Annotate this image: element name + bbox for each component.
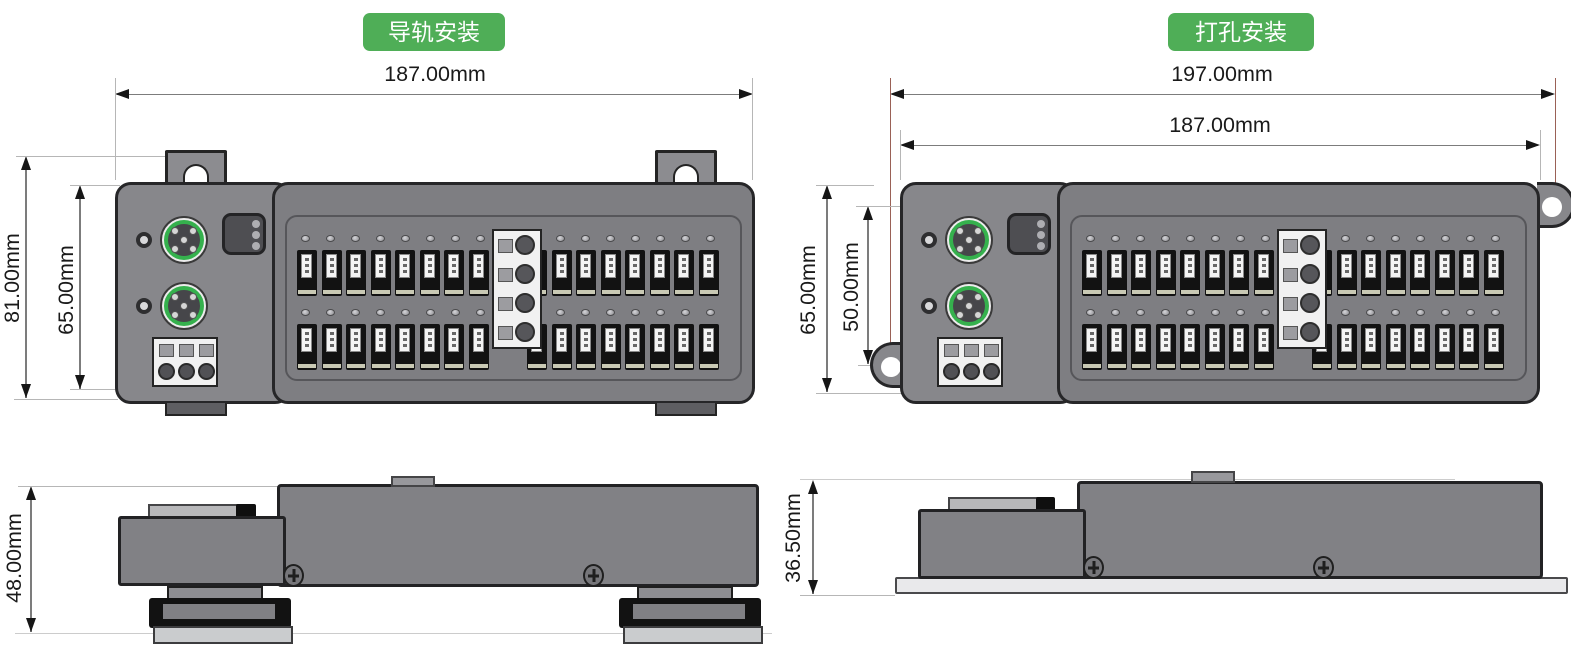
terminal-connector xyxy=(444,324,464,370)
terminal-connector xyxy=(576,250,596,296)
channel-led-icon xyxy=(631,235,640,242)
terminal-connector xyxy=(444,250,464,296)
terminal-connector xyxy=(601,324,621,370)
screw-icon xyxy=(283,564,304,587)
channel-led-icon xyxy=(1441,235,1450,242)
rail-mount-tab xyxy=(165,150,227,185)
extension-line xyxy=(70,389,120,390)
power-terminal-block xyxy=(937,337,1003,387)
extension-line xyxy=(14,399,118,400)
m12-connector-icon xyxy=(945,216,993,264)
channel-led-icon xyxy=(556,235,565,242)
channel-led-icon xyxy=(681,309,690,316)
dim-line xyxy=(892,94,1553,95)
rail-mount-tab xyxy=(655,150,717,185)
channel-led-icon xyxy=(581,235,590,242)
side-main-body xyxy=(1077,481,1543,579)
mounting-ear xyxy=(1537,182,1571,228)
channel-led-icon xyxy=(376,235,385,242)
channel-led-icon xyxy=(1111,235,1120,242)
din-rail-clip xyxy=(617,586,769,644)
channel-led-icon xyxy=(706,309,715,316)
terminal-connector xyxy=(469,324,489,370)
dim-line xyxy=(117,94,751,95)
screw-mount-side-view xyxy=(895,468,1571,608)
channel-led-icon xyxy=(1261,235,1270,242)
screw-icon xyxy=(1313,556,1334,579)
terminal-connector xyxy=(297,250,317,296)
channel-led-icon xyxy=(1186,235,1195,242)
channel-led-icon xyxy=(476,309,485,316)
channel-led-icon xyxy=(351,235,360,242)
terminal-connector xyxy=(469,250,489,296)
channel-led-icon xyxy=(1211,309,1220,316)
indicator-led-icon xyxy=(136,298,152,314)
terminal-connector xyxy=(1484,250,1504,296)
dim-arrow xyxy=(822,378,832,392)
status-led-panel xyxy=(1007,213,1051,255)
terminal-connector xyxy=(1386,324,1406,370)
channel-led-icon xyxy=(1136,309,1145,316)
channel-led-icon xyxy=(1086,235,1095,242)
channel-led-icon xyxy=(1466,235,1475,242)
terminal-group xyxy=(1312,233,1504,375)
terminal-connector xyxy=(674,250,694,296)
dim-line xyxy=(30,489,31,632)
dim-line xyxy=(79,188,80,389)
channel-led-icon xyxy=(1391,235,1400,242)
terminal-connector xyxy=(1229,250,1249,296)
terminal-connector xyxy=(1082,250,1102,296)
side-top-detail xyxy=(391,476,435,487)
screw-icon xyxy=(1083,556,1104,579)
rail-clip-tab xyxy=(655,403,717,416)
channel-led-icon xyxy=(606,309,615,316)
screw-mount-front-view xyxy=(900,150,1540,418)
dim-arrow xyxy=(75,375,85,389)
screw-icon xyxy=(583,564,604,587)
mounting-baseplate xyxy=(895,577,1568,594)
dim-label-left-width: 187.00mm xyxy=(350,62,520,87)
terminal-connector xyxy=(1459,324,1479,370)
channel-led-icon xyxy=(1416,235,1425,242)
extension-line xyxy=(1540,130,1541,180)
rail-mount-front-view xyxy=(115,150,755,418)
terminal-connector xyxy=(650,324,670,370)
mounting-hole xyxy=(1542,197,1562,217)
terminal-connector xyxy=(1435,250,1455,296)
channel-led-icon xyxy=(1341,309,1350,316)
channel-led-icon xyxy=(1161,309,1170,316)
dim-arrow xyxy=(26,618,36,632)
channel-led-icon xyxy=(1441,309,1450,316)
terminal-connector xyxy=(1205,250,1225,296)
dim-line xyxy=(826,188,827,392)
mounting-hole xyxy=(881,357,901,377)
channel-led-icon xyxy=(1416,309,1425,316)
rail-mount-badge: 导轨安装 xyxy=(363,13,505,51)
terminal-connector xyxy=(322,250,342,296)
indicator-led-icon xyxy=(136,232,152,248)
terminal-connector xyxy=(1337,324,1357,370)
channel-led-icon xyxy=(1186,309,1195,316)
mounting-dimensions-diagram: 导轨安装 187.00mm 81.00mm 65.00mm 48.00mm xyxy=(0,0,1571,664)
channel-led-icon xyxy=(1391,309,1400,316)
status-led-icon xyxy=(1037,220,1045,228)
dim-arrow xyxy=(822,185,832,199)
terminal-connector xyxy=(1082,324,1102,370)
dim-line xyxy=(867,209,868,364)
dim-arrow xyxy=(900,140,914,150)
terminal-connector xyxy=(346,324,366,370)
terminal-connector xyxy=(1254,324,1274,370)
channel-led-icon xyxy=(301,309,310,316)
terminal-connector xyxy=(552,324,572,370)
channel-led-icon xyxy=(451,235,460,242)
extension-line xyxy=(816,185,874,186)
channel-led-icon xyxy=(681,235,690,242)
din-rail-clip xyxy=(147,586,299,644)
terminal-connector xyxy=(1156,250,1176,296)
channel-led-icon xyxy=(606,235,615,242)
terminal-connector xyxy=(1435,324,1455,370)
terminal-group xyxy=(527,233,719,375)
channel-led-icon xyxy=(376,309,385,316)
channel-led-icon xyxy=(1086,309,1095,316)
terminal-connector xyxy=(371,250,391,296)
m12-connector-icon xyxy=(160,216,208,264)
channel-led-icon xyxy=(451,309,460,316)
dim-arrow xyxy=(115,89,129,99)
channel-led-icon xyxy=(1341,235,1350,242)
channel-led-icon xyxy=(1136,235,1145,242)
channel-led-icon xyxy=(1161,235,1170,242)
dim-label-right-height-outer: 65.00mm xyxy=(795,225,821,355)
device-head-section xyxy=(115,182,291,404)
dim-arrow xyxy=(1541,89,1555,99)
terminal-connector xyxy=(552,250,572,296)
side-head-section xyxy=(918,509,1086,579)
channel-led-icon xyxy=(476,235,485,242)
terminal-connector xyxy=(1180,324,1200,370)
rail-clip-tab xyxy=(165,403,227,416)
channel-led-icon xyxy=(401,235,410,242)
channel-led-icon xyxy=(426,235,435,242)
terminal-connector xyxy=(420,324,440,370)
channel-led-icon xyxy=(351,309,360,316)
terminal-connector xyxy=(322,324,342,370)
side-head-section xyxy=(118,516,286,586)
screw-mount-badge: 打孔安装 xyxy=(1168,13,1314,51)
status-led-icon xyxy=(252,242,260,250)
channel-led-icon xyxy=(326,309,335,316)
terminal-group xyxy=(1082,233,1274,375)
terminal-connector xyxy=(674,324,694,370)
dim-label-left-height-inner: 65.00mm xyxy=(53,225,79,355)
channel-led-icon xyxy=(1366,309,1375,316)
terminal-connector xyxy=(1254,250,1274,296)
side-top-detail xyxy=(1191,471,1235,483)
device-io-section xyxy=(272,182,755,404)
dim-arrow xyxy=(739,89,753,99)
terminal-connector xyxy=(1131,324,1151,370)
terminal-connector xyxy=(1229,324,1249,370)
terminal-connector xyxy=(1361,250,1381,296)
terminal-connector xyxy=(1156,324,1176,370)
indicator-led-icon xyxy=(921,232,937,248)
channel-led-icon xyxy=(656,309,665,316)
dim-line xyxy=(25,159,26,398)
channel-led-icon xyxy=(706,235,715,242)
status-led-icon xyxy=(1037,231,1045,239)
dim-arrow xyxy=(21,156,31,170)
dim-label-right-width-outer: 197.00mm xyxy=(1137,62,1307,87)
channel-led-icon xyxy=(301,235,310,242)
terminal-connector xyxy=(395,324,415,370)
terminal-connector xyxy=(1410,250,1430,296)
m12-connector-icon xyxy=(160,282,208,330)
extension-line xyxy=(816,393,902,394)
dim-line xyxy=(812,483,813,594)
channel-led-icon xyxy=(556,309,565,316)
terminal-connector xyxy=(601,250,621,296)
channel-led-icon xyxy=(581,309,590,316)
dim-label-right-side-height: 36.50mm xyxy=(780,473,806,603)
terminal-connector xyxy=(1107,324,1127,370)
terminal-connector xyxy=(625,324,645,370)
dim-line xyxy=(902,145,1538,146)
channel-led-icon xyxy=(1211,235,1220,242)
device-head-section xyxy=(900,182,1076,404)
device-body xyxy=(900,182,1540,404)
terminal-connector xyxy=(1410,324,1430,370)
terminal-connector xyxy=(395,250,415,296)
channel-led-icon xyxy=(426,309,435,316)
m12-connector-icon xyxy=(945,282,993,330)
channel-led-icon xyxy=(1491,309,1500,316)
channel-led-icon xyxy=(326,235,335,242)
middle-terminal-block xyxy=(492,229,542,349)
terminal-connector xyxy=(1205,324,1225,370)
terminal-connector xyxy=(346,250,366,296)
side-main-body xyxy=(277,484,759,587)
terminal-connector xyxy=(1386,250,1406,296)
channel-led-icon xyxy=(1491,235,1500,242)
terminal-connector xyxy=(1180,250,1200,296)
dim-arrow xyxy=(1526,140,1540,150)
extension-line xyxy=(856,206,904,207)
terminal-connector xyxy=(1361,324,1381,370)
rail-mount-side-view xyxy=(115,468,763,664)
extension-line xyxy=(800,595,895,596)
terminal-connector xyxy=(1131,250,1151,296)
terminal-connector xyxy=(699,324,719,370)
extension-line xyxy=(70,185,120,186)
terminal-connector xyxy=(625,250,645,296)
middle-terminal-block xyxy=(1277,229,1327,349)
channel-led-icon xyxy=(631,309,640,316)
status-led-icon xyxy=(1037,242,1045,250)
terminal-connector xyxy=(420,250,440,296)
hole-center-line xyxy=(890,78,891,370)
channel-led-icon xyxy=(1236,235,1245,242)
channel-led-icon xyxy=(401,309,410,316)
channel-led-icon xyxy=(656,235,665,242)
channel-led-icon xyxy=(1236,309,1245,316)
dim-label-right-width-inner: 187.00mm xyxy=(1135,113,1305,138)
dim-arrow xyxy=(808,580,818,594)
device-body xyxy=(115,182,755,404)
channel-led-icon xyxy=(1466,309,1475,316)
dim-arrow xyxy=(21,384,31,398)
terminal-connector xyxy=(297,324,317,370)
status-led-icon xyxy=(252,220,260,228)
dim-label-left-side-height: 48.00mm xyxy=(1,493,27,623)
dim-label-right-height-inner: 50.00mm xyxy=(838,222,864,352)
dim-label-left-height-outer: 81.00mm xyxy=(0,213,25,343)
device-io-section xyxy=(1057,182,1540,404)
dim-arrow xyxy=(26,486,36,500)
channel-led-icon xyxy=(1261,309,1270,316)
power-terminal-block xyxy=(152,337,218,387)
terminal-connector xyxy=(699,250,719,296)
status-led-icon xyxy=(252,231,260,239)
terminal-group xyxy=(297,233,489,375)
terminal-connector xyxy=(1337,250,1357,296)
indicator-led-icon xyxy=(921,298,937,314)
channel-led-icon xyxy=(1366,235,1375,242)
dim-arrow xyxy=(75,185,85,199)
dim-arrow xyxy=(808,480,818,494)
dim-arrow xyxy=(890,89,904,99)
terminal-connector xyxy=(1459,250,1479,296)
terminal-connector xyxy=(1484,324,1504,370)
dim-arrow xyxy=(863,206,873,220)
status-led-panel xyxy=(222,213,266,255)
terminal-connector xyxy=(371,324,391,370)
terminal-connector xyxy=(650,250,670,296)
terminal-connector xyxy=(576,324,596,370)
channel-led-icon xyxy=(1111,309,1120,316)
terminal-connector xyxy=(1107,250,1127,296)
